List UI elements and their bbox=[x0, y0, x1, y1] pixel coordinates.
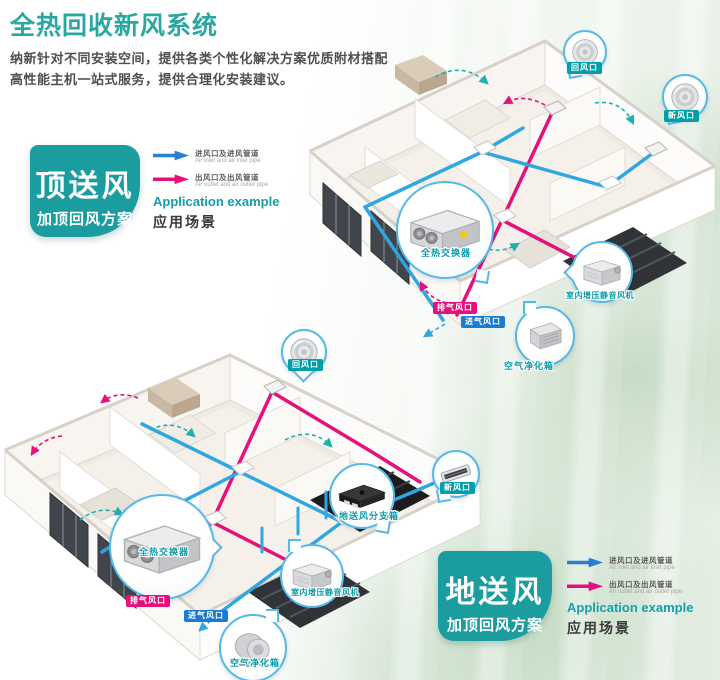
legend-outlet-en: Air outlet and air outlet pipe bbox=[195, 182, 268, 190]
legend-top: 进风口及进风管道 Air inlet and air inlet pipe 出风… bbox=[153, 149, 268, 197]
label-booster-fan-bottom: 室内增压静音风机 bbox=[291, 587, 359, 598]
scheme-subtitle-bottom: 加顶回风方案 bbox=[438, 614, 552, 635]
page-subtitle: 纳新针对不同安装空间，提供各类个性化解决方案优质附材搭配 高性能主机一站式服务，… bbox=[10, 49, 388, 91]
scheme-badge-top: 顶送风 加顶回风方案 bbox=[30, 145, 140, 237]
legend-inlet-en: Air inlet and air inlet pipe bbox=[195, 158, 261, 166]
subtitle-line2: 高性能主机一站式服务，提供合理化安装建议。 bbox=[10, 72, 294, 87]
label-air-purifier-top: 空气净化箱 bbox=[504, 359, 554, 372]
outlet-arrow-icon bbox=[153, 174, 189, 185]
scheme-title-top: 顶送风 bbox=[30, 161, 140, 205]
label-distribution-box-bottom: 地送风分支箱 bbox=[339, 509, 399, 522]
legend-outlet-en: Air outlet and air outlet pipe bbox=[609, 589, 682, 597]
label-exhaust-vent-top: 排气风口 bbox=[433, 302, 477, 314]
air-purifier-icon bbox=[524, 317, 566, 355]
header: 全热回收新风系统 纳新针对不同安装空间，提供各类个性化解决方案优质附材搭配 高性… bbox=[10, 6, 388, 91]
inlet-arrow-icon bbox=[153, 150, 189, 161]
label-fresh-vent-top: 新风口 bbox=[664, 110, 699, 122]
callout-heat-exchanger-top bbox=[396, 181, 494, 279]
callout-tail bbox=[475, 269, 490, 284]
label-return-vent-bottom: 回风口 bbox=[288, 359, 323, 371]
callout-air-purifier-top bbox=[515, 306, 575, 366]
callout-tail bbox=[523, 301, 536, 314]
application-bottom: Application example 应用场景 bbox=[567, 600, 693, 638]
legend-outlet-row: 出风口及出风管道 Air outlet and air outlet pipe bbox=[153, 173, 268, 190]
callout-tail bbox=[288, 539, 301, 552]
application-en-bottom: Application example bbox=[567, 600, 693, 615]
legend-inlet-row: 进风口及进风管道 Air inlet and air inlet pipe bbox=[153, 149, 268, 166]
application-en-top: Application example bbox=[153, 194, 279, 209]
legend-inlet-en: Air inlet and air inlet pipe bbox=[609, 565, 675, 573]
legend-outlet-cn: 出风口及出风管道 bbox=[195, 173, 268, 182]
round-diffuser-icon bbox=[668, 80, 702, 114]
label-air-purifier-bottom: 空气净化箱 bbox=[230, 656, 280, 669]
outlet-arrow-icon bbox=[567, 581, 603, 592]
label-intake-vent-top: 进气风口 bbox=[461, 316, 505, 328]
legend-outlet-row: 出风口及出风管道 Air outlet and air outlet pipe bbox=[567, 580, 682, 597]
label-return-vent-top: 回风口 bbox=[567, 62, 602, 74]
label-exhaust-vent-bottom: 排气风口 bbox=[126, 595, 170, 607]
subtitle-line1: 纳新针对不同安装空间，提供各类个性化解决方案优质附材搭配 bbox=[10, 51, 388, 66]
scheme-badge-bottom: 地送风 加顶回风方案 bbox=[438, 551, 552, 641]
application-cn-bottom: 应用场景 bbox=[567, 618, 693, 638]
callout-air-purifier-bottom bbox=[219, 614, 287, 680]
legend-inlet-cn: 进风口及进风管道 bbox=[609, 556, 675, 565]
label-heat-exchanger-top: 全热交换器 bbox=[421, 246, 471, 259]
application-top: Application example 应用场景 bbox=[153, 194, 279, 232]
label-intake-vent-bottom: 进气风口 bbox=[184, 610, 228, 622]
poster-canvas: 全热回收新风系统 纳新针对不同安装空间，提供各类个性化解决方案优质附材搭配 高性… bbox=[0, 0, 720, 680]
legend-inlet-row: 进风口及进风管道 Air inlet and air inlet pipe bbox=[567, 556, 682, 573]
scheme-subtitle-top: 加顶回风方案 bbox=[30, 208, 140, 229]
page-title: 全热回收新风系统 bbox=[10, 6, 388, 42]
scheme-title-bottom: 地送风 bbox=[438, 567, 552, 611]
legend-inlet-cn: 进风口及进风管道 bbox=[195, 149, 261, 158]
application-cn-top: 应用场景 bbox=[153, 212, 279, 232]
legend-bottom: 进风口及进风管道 Air inlet and air inlet pipe 出风… bbox=[567, 556, 682, 604]
callout-tail bbox=[266, 609, 279, 622]
floor-distribution-box-icon bbox=[336, 480, 388, 513]
inlet-arrow-icon bbox=[567, 557, 603, 568]
callout-booster-fan-bottom bbox=[280, 544, 344, 608]
legend-outlet-cn: 出风口及出风管道 bbox=[609, 580, 682, 589]
booster-fan-icon bbox=[579, 253, 625, 291]
label-heat-exchanger-bottom: 全热交换器 bbox=[139, 545, 189, 558]
label-booster-fan-top: 室内增压静音风机 bbox=[566, 290, 634, 301]
label-fresh-vent-bottom: 新风口 bbox=[440, 482, 475, 494]
